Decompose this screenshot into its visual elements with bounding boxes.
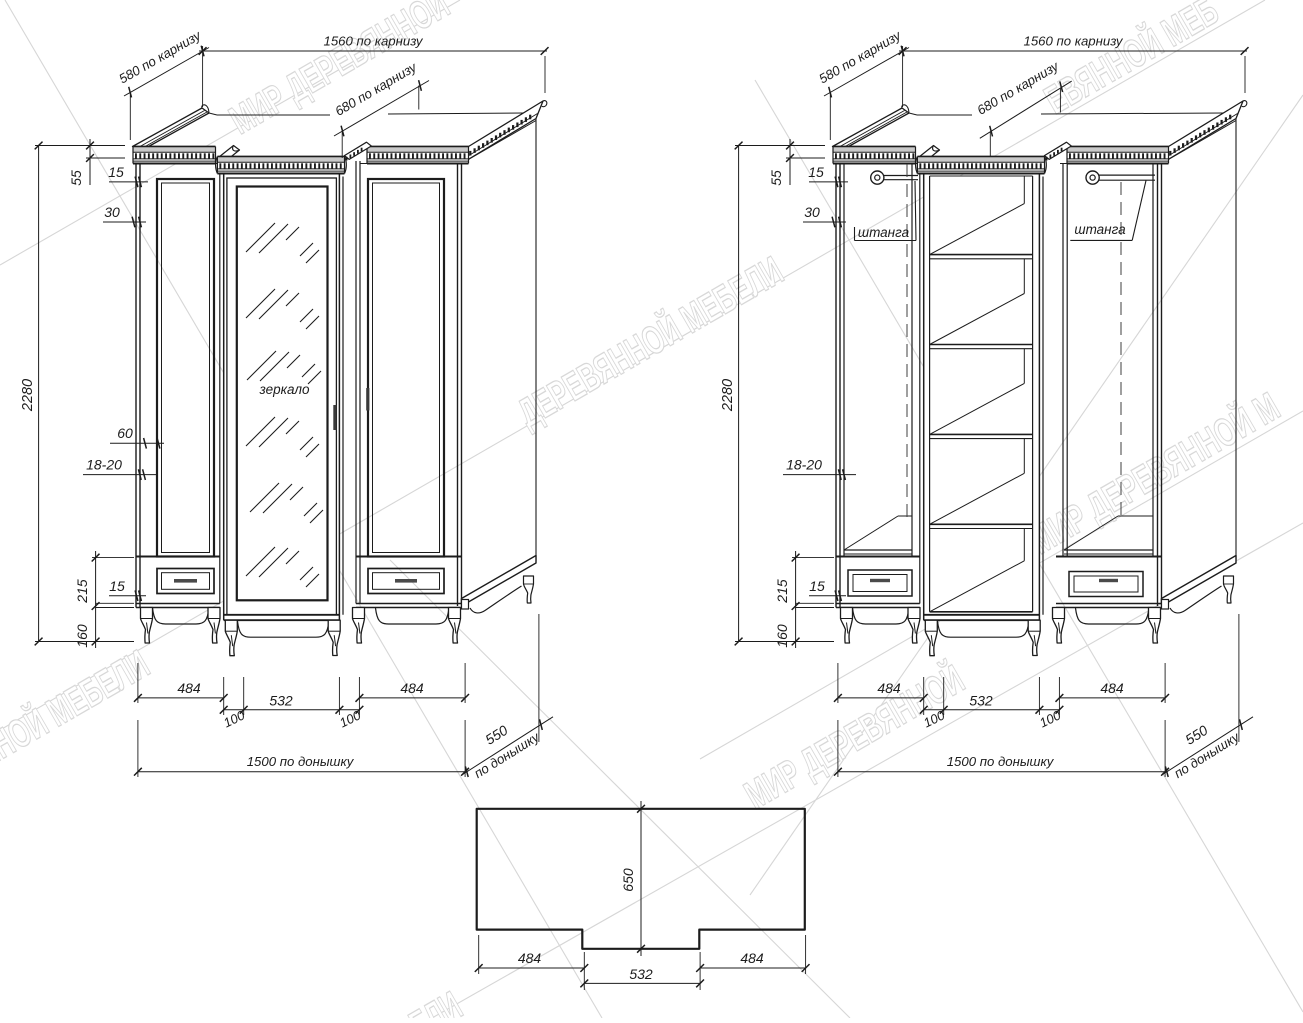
svg-text:484: 484 bbox=[877, 680, 901, 696]
svg-text:2280: 2280 bbox=[720, 379, 736, 412]
svg-text:532: 532 bbox=[269, 693, 293, 709]
svg-text:532: 532 bbox=[969, 693, 993, 709]
svg-text:484: 484 bbox=[1100, 680, 1124, 696]
svg-text:1500 по донышку: 1500 по донышку bbox=[947, 754, 1055, 769]
svg-text:160: 160 bbox=[774, 624, 790, 648]
svg-text:1560 по карнизу: 1560 по карнизу bbox=[323, 34, 423, 49]
svg-text:1500 по донышку: 1500 по донышку bbox=[247, 754, 355, 769]
svg-text:30: 30 bbox=[804, 204, 820, 220]
svg-text:штанга: штанга bbox=[858, 225, 910, 240]
svg-text:55: 55 bbox=[768, 170, 784, 186]
svg-text:15: 15 bbox=[108, 164, 124, 180]
svg-text:18-20: 18-20 bbox=[786, 457, 822, 473]
svg-text:532: 532 bbox=[629, 966, 653, 982]
svg-text:484: 484 bbox=[518, 950, 542, 966]
svg-text:1560 по карнизу: 1560 по карнизу bbox=[1023, 34, 1123, 49]
svg-text:55: 55 bbox=[68, 170, 84, 186]
svg-text:30: 30 bbox=[104, 204, 120, 220]
svg-text:штанга: штанга bbox=[1074, 222, 1126, 237]
svg-text:160: 160 bbox=[74, 624, 90, 648]
svg-text:215: 215 bbox=[74, 579, 90, 604]
svg-text:15: 15 bbox=[809, 578, 825, 594]
svg-text:484: 484 bbox=[177, 680, 201, 696]
svg-text:484: 484 bbox=[400, 680, 424, 696]
svg-text:650: 650 bbox=[620, 868, 636, 892]
svg-text:2280: 2280 bbox=[20, 379, 36, 412]
svg-text:15: 15 bbox=[808, 164, 824, 180]
svg-text:зеркало: зеркало bbox=[259, 382, 310, 397]
svg-text:15: 15 bbox=[109, 578, 125, 594]
svg-text:60: 60 bbox=[117, 425, 133, 441]
svg-text:484: 484 bbox=[740, 950, 764, 966]
svg-text:18-20: 18-20 bbox=[86, 457, 122, 473]
svg-text:215: 215 bbox=[774, 579, 790, 604]
